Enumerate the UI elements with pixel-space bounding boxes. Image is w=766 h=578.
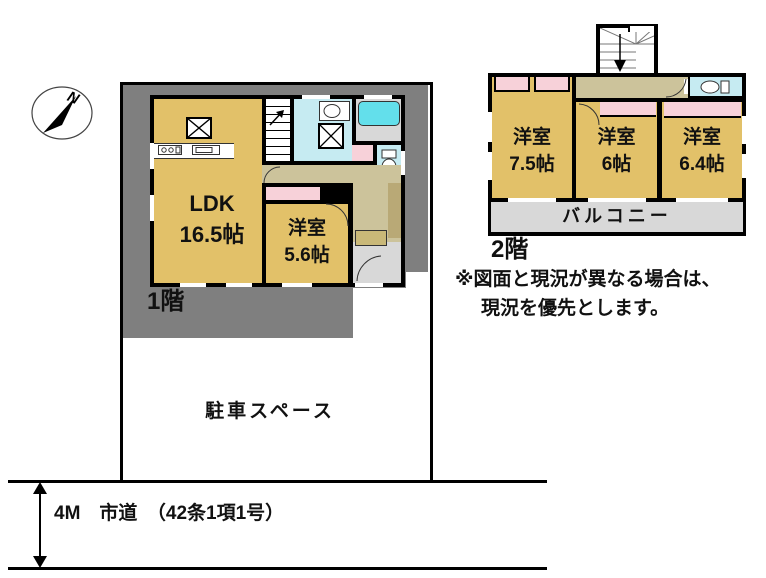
room-2f-3-name: 洋室	[662, 122, 742, 149]
bedroom1f-size: 5.6帖	[266, 240, 348, 267]
ldk-name: LDK	[164, 191, 260, 217]
closet-2f-1a	[494, 77, 530, 92]
washing-machine-icon	[318, 123, 344, 149]
sink-icon	[192, 145, 220, 155]
road-line-bottom	[8, 567, 547, 570]
door-arc-ldk	[262, 165, 282, 185]
window-washroom-top	[302, 95, 330, 99]
road-width-arrow-icon	[28, 482, 52, 568]
room-2f-2-size: 6帖	[576, 149, 657, 176]
window-ldk-bottom2	[226, 283, 252, 287]
room-2f-1-name: 洋室	[492, 122, 572, 149]
room-2f-1-label: 洋室 7.5帖	[492, 122, 572, 176]
toilet-2f-icon	[700, 79, 732, 95]
room-2f-3-label: 洋室 6.4帖	[662, 122, 742, 176]
parking-label: 駐車スペース	[150, 401, 390, 423]
window-2f-right1	[742, 116, 746, 144]
window-bedroom-bottom	[282, 283, 312, 287]
stairs-2f	[600, 28, 654, 77]
road-label: 4M 市道 （42条1項1号）	[54, 503, 284, 525]
floorplan-canvas: N	[0, 0, 766, 578]
balcony-label: バルコニー	[491, 206, 743, 227]
entrance-step	[355, 230, 387, 246]
toilet-room-2f	[690, 77, 742, 96]
note-line1: ※図面と現況が異なる場合は、	[455, 269, 720, 291]
room-2f-2-name: 洋室	[576, 122, 657, 149]
stair-block-notch	[628, 24, 656, 32]
window-toilet-right	[401, 151, 405, 175]
floor1-plan: LDK 16.5帖 洋室 5.6帖	[150, 95, 405, 287]
cooktop-icon	[186, 117, 212, 139]
window-ldk-left1	[150, 143, 154, 169]
entrance-door-gap	[355, 283, 383, 287]
stairs-down-arrow-icon	[614, 60, 626, 72]
room-2f-2-label: 洋室 6帖	[576, 122, 657, 176]
road-line-top	[8, 480, 547, 483]
bathtub-icon	[358, 101, 400, 126]
ldk-label: LDK 16.5帖	[164, 191, 260, 249]
closet-2f-3	[664, 102, 741, 118]
bedroom1f-label: 洋室 5.6帖	[266, 213, 348, 267]
closet-1f-hall	[352, 145, 373, 163]
window-2f-right2	[742, 154, 746, 178]
closet-1f-bedroom	[266, 187, 320, 200]
room-2f-3-size: 6.4帖	[662, 149, 742, 176]
closet-2f-1b	[534, 77, 570, 92]
washbasin-icon	[319, 101, 350, 121]
stairs-up-arrow-icon	[266, 99, 290, 129]
bedroom1f-name: 洋室	[266, 213, 348, 240]
shoe-cabinet	[388, 183, 401, 238]
window-ldk-left2	[150, 195, 154, 221]
window-ldk-bottom1	[180, 283, 206, 287]
room-2f-1-size: 7.5帖	[492, 149, 572, 176]
stairs-2f-treads	[600, 28, 654, 77]
floor2-plan: バルコニー 洋室 7.5帖 洋室 6帖 洋室 6.4帖	[488, 24, 746, 236]
bathroom	[356, 99, 401, 141]
compass-icon: N	[30, 84, 94, 142]
floor1-caption: 1階	[147, 288, 184, 316]
note-line2: 現況を優先とします。	[481, 298, 669, 320]
door-arc-entrance	[355, 253, 383, 283]
closet-2f-2	[600, 102, 656, 117]
stove-icon	[158, 145, 182, 155]
floor2-caption: 2階	[491, 236, 528, 264]
door-arc-room3	[664, 77, 688, 99]
window-bath-top	[364, 95, 392, 99]
balcony: バルコニー	[488, 202, 746, 236]
ldk-size: 16.5帖	[164, 217, 260, 249]
